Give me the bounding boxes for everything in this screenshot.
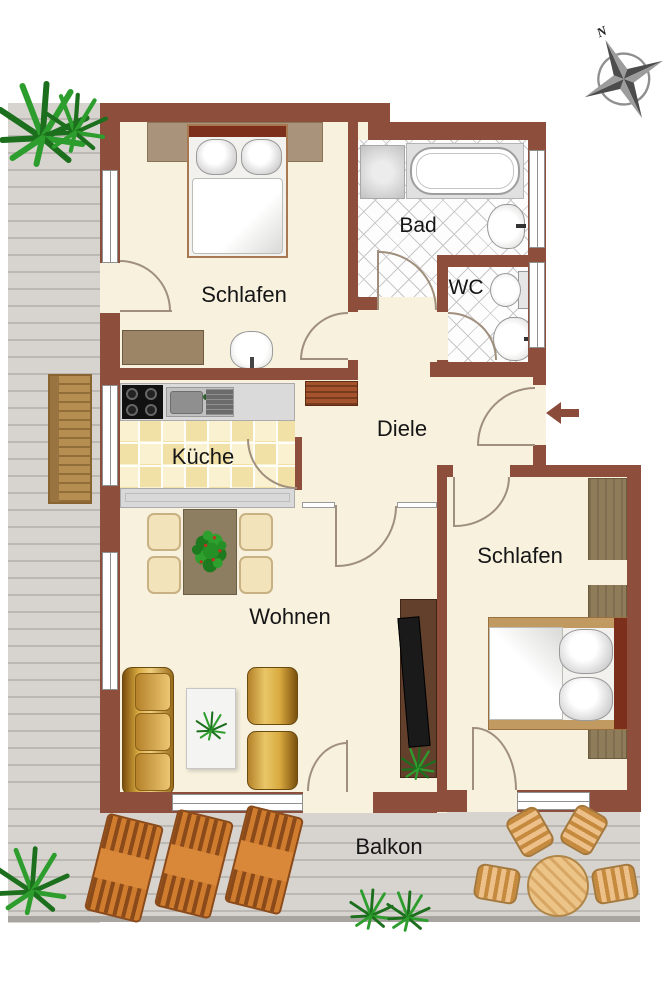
- window-living-south: [172, 794, 303, 811]
- round-table: [527, 855, 589, 917]
- compass-north-label: N: [593, 23, 609, 41]
- bed-right-bedroom: [488, 617, 629, 730]
- wall-living-bedroom2: [437, 465, 447, 790]
- wall-bedroom2-top-right: [510, 465, 641, 477]
- door-leaf: [335, 505, 337, 567]
- bathroom-sink: [487, 204, 525, 249]
- window-bath-east: [529, 150, 545, 248]
- wall-north-a: [100, 103, 390, 122]
- wc-sink: [493, 317, 533, 361]
- pillow: [241, 139, 282, 175]
- sofa-cushion: [135, 713, 171, 751]
- shower: [360, 145, 405, 199]
- window-wc-east: [529, 262, 545, 348]
- label-kitchen: Küche: [158, 446, 248, 468]
- burner: [126, 404, 138, 416]
- bar-counter: [120, 488, 295, 508]
- door-leaf: [120, 310, 172, 312]
- plant-balcony-2: [382, 890, 434, 938]
- door-leaf: [346, 740, 348, 792]
- entrance-arrow-head: [546, 402, 561, 424]
- balcony-door-living-opening: [303, 792, 373, 813]
- door-leaf: [453, 477, 455, 527]
- wall-east-bedroom2: [627, 465, 641, 812]
- toilet-bowl: [490, 273, 521, 307]
- label-bedroom-right: Schlafen: [468, 545, 572, 567]
- plant-top-left-2: [40, 92, 110, 162]
- burner: [145, 404, 157, 416]
- armchair: [247, 667, 298, 725]
- burner: [126, 388, 138, 400]
- pillow: [559, 677, 613, 721]
- sideboard-bedroom: [122, 330, 204, 365]
- bench-backrest: [50, 376, 59, 502]
- kitchen-sink-unit: [166, 387, 234, 417]
- terrace-door-opening: [100, 263, 120, 313]
- basin-tap: [250, 357, 254, 368]
- bar-counter-line: [125, 493, 290, 502]
- window-bedroom1-west: [102, 170, 118, 263]
- bed-headboard: [189, 126, 286, 137]
- wall-entry-stub: [533, 377, 546, 385]
- armchair: [247, 731, 298, 790]
- label-bedroom-top: Schlafen: [194, 284, 294, 306]
- entrance-arrow-shaft: [560, 409, 579, 417]
- burner: [145, 388, 157, 400]
- wall-entry-block: [533, 445, 546, 477]
- bed-duvet: [192, 178, 283, 254]
- floor-plan: Schlafen Bad WC Diele Küche Wohnen Schla…: [0, 0, 667, 1000]
- door-leaf: [300, 358, 348, 360]
- window-kitchen-west: [102, 385, 118, 486]
- compass-rose: N: [573, 23, 667, 120]
- balcony-chair: [590, 862, 640, 905]
- dining-chair: [239, 556, 273, 594]
- dining-chair: [147, 513, 181, 551]
- wall-bath-south: [348, 297, 377, 310]
- stove: [122, 385, 163, 419]
- label-bathroom: Bad: [394, 215, 442, 236]
- dining-chair: [147, 556, 181, 594]
- bathtub: [410, 147, 520, 195]
- balcony-door-bedroom2-opening: [467, 790, 517, 812]
- door-leaf: [472, 727, 474, 790]
- pillow: [196, 139, 237, 175]
- table-plant: [188, 520, 232, 584]
- drainer: [206, 389, 233, 415]
- balcony-chair: [472, 862, 522, 905]
- pillow: [559, 629, 613, 674]
- partition-hall-living-b: [397, 502, 437, 508]
- label-hallway: Diele: [358, 418, 446, 440]
- wall-wc-north: [437, 255, 533, 267]
- kitchen-counter: [120, 383, 295, 421]
- washbasin-bedroom: [230, 331, 273, 369]
- wardrobe-gap: [587, 560, 628, 585]
- door-leaf: [477, 444, 535, 446]
- dining-chair: [239, 513, 273, 551]
- hall-shelf: [305, 381, 358, 406]
- floor-plant-living: [399, 745, 437, 787]
- garden-bench: [48, 374, 92, 504]
- bed-duvet: [489, 627, 563, 720]
- wall-bedroom1-bath: [348, 122, 358, 312]
- partition-hall-living-a: [302, 502, 335, 508]
- wall-kitchen-north: [100, 368, 358, 380]
- deck-edge: [8, 916, 640, 922]
- wall-north-b: [368, 122, 546, 140]
- label-living: Wohnen: [246, 606, 334, 628]
- bathtub-inner: [416, 153, 514, 189]
- sofa-cushion: [135, 673, 171, 711]
- window-living-west: [102, 552, 118, 690]
- bed-top-bedroom: [187, 124, 288, 258]
- label-balcony: Balkon: [350, 836, 428, 858]
- kitchen-sink-basin: [170, 391, 203, 414]
- sofa-cushion: [135, 753, 171, 791]
- door-leaf: [377, 250, 379, 310]
- bed-frame-bottom: [489, 720, 628, 729]
- sink-tap: [516, 224, 526, 228]
- coffee-table-plant: [194, 710, 228, 746]
- wall-wc-south: [430, 362, 546, 377]
- label-wc: WC: [444, 277, 488, 298]
- plant-bottom-left: [0, 838, 72, 933]
- entrance-arrow: [546, 402, 582, 424]
- bed-headboard: [614, 618, 628, 729]
- sofa: [122, 667, 174, 796]
